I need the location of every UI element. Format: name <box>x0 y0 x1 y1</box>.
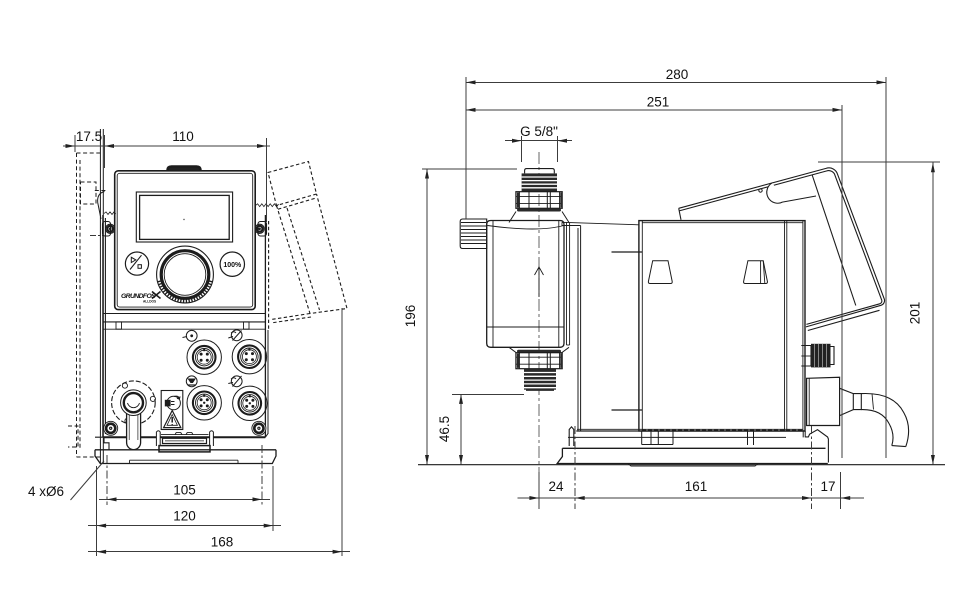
svg-text:120: 120 <box>173 509 196 524</box>
svg-text:251: 251 <box>647 95 670 110</box>
svg-text:280: 280 <box>666 67 689 82</box>
svg-text:100%: 100% <box>223 262 242 269</box>
svg-text:110: 110 <box>172 129 194 144</box>
svg-text:46.5: 46.5 <box>437 416 452 442</box>
svg-text:168: 168 <box>211 535 234 550</box>
svg-text:G 5/8": G 5/8" <box>520 124 558 139</box>
svg-text:ALLDOS: ALLDOS <box>143 300 156 304</box>
svg-text:161: 161 <box>685 479 708 494</box>
svg-text:196: 196 <box>403 305 418 328</box>
svg-text:105: 105 <box>173 483 196 498</box>
svg-text:17: 17 <box>820 479 835 494</box>
svg-text:17.5: 17.5 <box>76 129 102 144</box>
svg-text:4 xØ6: 4 xØ6 <box>28 484 64 499</box>
svg-text:24: 24 <box>548 479 564 494</box>
svg-text:201: 201 <box>908 302 923 325</box>
